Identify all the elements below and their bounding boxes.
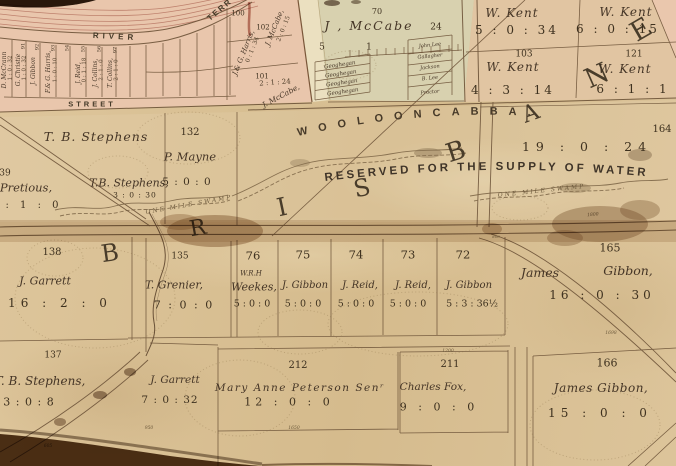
7-0-32-label: 7 : 0 : 32 <box>141 395 198 406</box>
5-0-0-label: 5 : 0 : 0 <box>338 299 375 309</box>
102-label: 102 <box>256 25 269 32</box>
region-letter-r: R <box>188 217 208 242</box>
3-0-8-label: 3 : 0 : 8 <box>3 397 54 408</box>
p-mayne-label: P. Mayne <box>164 151 216 163</box>
211-label: 211 <box>440 360 459 370</box>
historical-map-canvas: WOOLOONCABBA. RESERVED FOR THE SUPPLY OF… <box>0 0 676 466</box>
74-label: 74 <box>349 249 364 261</box>
pretious-label: Pretious, <box>0 182 52 194</box>
4-3-14-label: 4 : 3 : 14 <box>471 84 555 96</box>
950-label: 950 <box>145 427 154 432</box>
92-label: 92 <box>36 44 41 50</box>
t-b-stephens-label: T. B. Stephens, <box>0 375 85 387</box>
166-label: 166 <box>597 358 618 369</box>
24-label: 24 <box>430 24 441 33</box>
93-label: 93 <box>52 45 57 51</box>
region-letter-b: B <box>100 240 121 266</box>
55-label: 55 <box>82 46 87 52</box>
12-0-0-label: 12 : 0 : 0 <box>244 397 333 408</box>
165-label: 165 <box>600 243 621 254</box>
54-label: 54 <box>66 45 71 51</box>
f-g-harris-label: F.& G. Harris, <box>46 51 52 93</box>
j-reid-label: J. Reid, <box>342 281 378 291</box>
street-label: STREET <box>68 100 116 108</box>
132-label: 132 <box>180 128 199 138</box>
5-0-34-label: 5 : 0 : 34 <box>475 24 559 36</box>
gibbon-label: Gibbon, <box>603 265 653 278</box>
5-0-0-label: 5 : 0 : 0 <box>285 299 322 309</box>
w-kent-label: W. Kent <box>486 61 539 73</box>
164-label: 164 <box>652 125 671 135</box>
97-label: 97 <box>114 47 119 53</box>
1-0-label: : 1 : 0 <box>6 201 63 211</box>
1698-label: 1698 <box>605 332 616 337</box>
800-label: 800 <box>492 235 500 239</box>
mary-anne-peterson-sen-label: Mary Anne Peterson Senʳ <box>215 383 385 394</box>
t-b-stephens-label: T.B. Stephens, <box>89 178 169 189</box>
121-label: 121 <box>625 51 642 60</box>
56-label: 56 <box>98 46 103 52</box>
2-1-0-label: 2 : 1 : 0 <box>99 59 105 80</box>
2-1-0-label: 2 : 1 : 0 <box>114 59 120 80</box>
0-1-18-label: 0 : 1 : 18 <box>82 58 88 83</box>
91-label: 91 <box>22 43 27 49</box>
1-0-32-label: 1 : 0 : 32 <box>8 56 14 81</box>
j-gibbon-label: J. Gibbon <box>446 281 492 291</box>
j-gibbon-label: J. Gibbon <box>31 57 37 85</box>
james-gibbon-label: James Gibbon, <box>554 382 648 394</box>
weekes-label: Weekes, <box>231 282 277 293</box>
19-0-24-label: 19 : 0 : 24 <box>522 141 652 154</box>
t-grenier-label: T. Grenier, <box>145 280 203 291</box>
138-label: 138 <box>42 248 61 258</box>
5-0-0-label: 5 : 0 : 0 <box>162 177 211 188</box>
5-3-36-label: 5 : 3 : 36½ <box>446 299 498 309</box>
t-b-stephens-label: T. B. Stephens <box>44 131 148 144</box>
w-kent-label: W. Kent <box>485 7 538 19</box>
103-label: 103 <box>515 51 532 60</box>
5-label: 5 <box>319 44 325 53</box>
1200-label: 1200 <box>442 350 453 355</box>
charles-fox-label: Charles Fox, <box>400 382 467 393</box>
137-label: 137 <box>44 352 61 361</box>
212-label: 212 <box>288 361 307 371</box>
73-label: 73 <box>401 249 416 261</box>
135-label: 135 <box>171 253 188 262</box>
1650-label: 1650 <box>288 427 299 432</box>
605-label: 605 <box>44 445 53 450</box>
75-label: 75 <box>296 249 311 261</box>
1-label: 1 <box>366 44 372 53</box>
100-label: 100 <box>231 11 244 18</box>
72-label: 72 <box>456 249 471 261</box>
j-garrett-label: J. Garrett <box>150 375 199 386</box>
5-0-0-label: 5 : 0 : 0 <box>234 299 271 309</box>
76-label: 76 <box>246 250 261 262</box>
1-0-32-label: 1 : 0 : 32 <box>22 56 28 81</box>
j-gibbon-label: J. Gibbon <box>282 281 328 291</box>
j-reid-label: J. Reid, <box>395 281 431 291</box>
9-0-0-label: 9 : 0 : 0 <box>400 402 478 413</box>
70-label: 70 <box>372 8 382 16</box>
j-mccabe-parcel-owner: J , McCabe <box>324 20 413 33</box>
south-lots-lines <box>0 234 676 466</box>
james-label: James <box>521 267 559 280</box>
39-label: 39 <box>0 170 11 179</box>
5-0-0-label: 5 : 0 : 0 <box>390 299 427 309</box>
16-0-30-label: 16 : 0 : 30 <box>549 289 655 301</box>
16-2-0-label: 16 : 2 : 0 <box>8 297 112 309</box>
15-0-0-label: 15 : 0 : 0 <box>548 407 652 419</box>
7-0-0-label: 7 : 0 : 0 <box>154 300 214 311</box>
w-r-h-label: W.R.H <box>240 271 262 278</box>
j-garrett-label: J. Garrett <box>19 276 71 287</box>
3-0-30-label: 3 : 0 : 30 <box>113 191 157 199</box>
1-0-10-label: 1 : 0 : 10 <box>53 58 59 83</box>
main-road <box>0 221 676 236</box>
